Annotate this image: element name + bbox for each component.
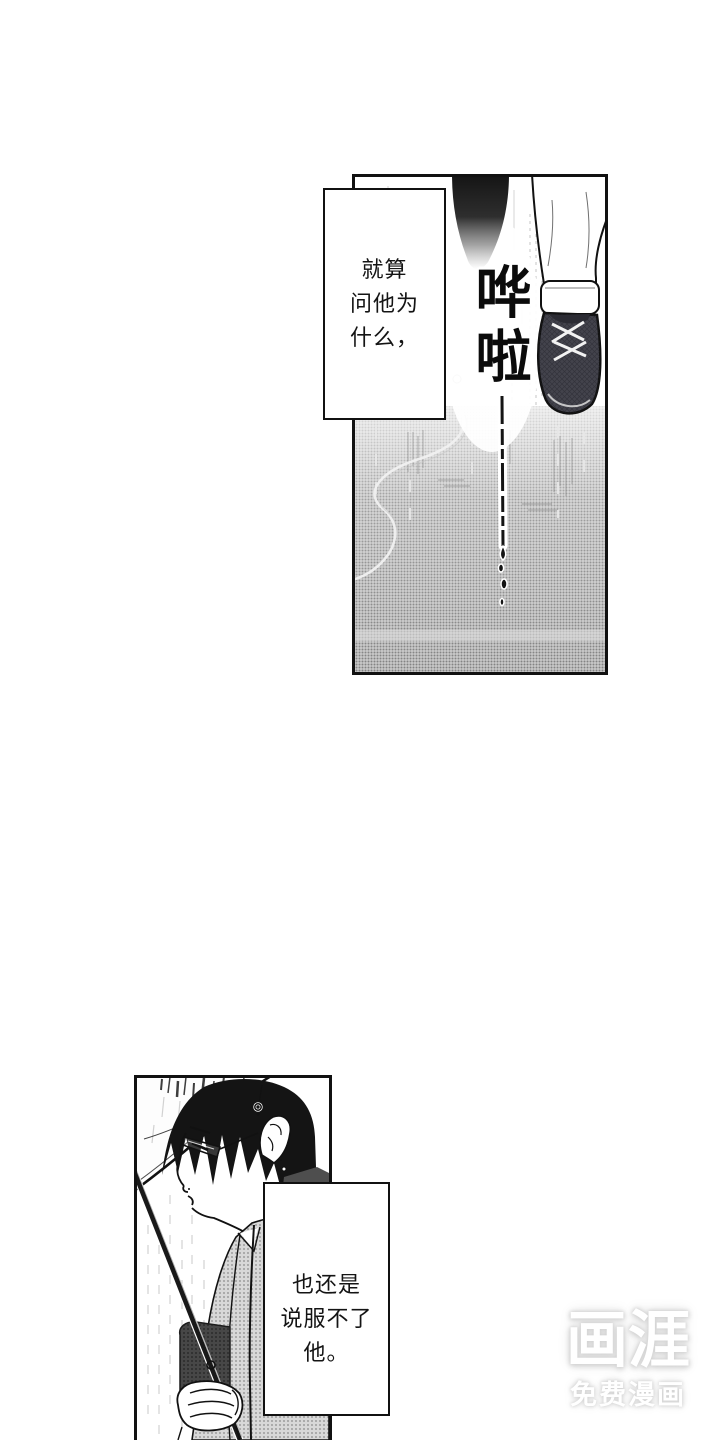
narration-line: 什么，	[350, 321, 419, 355]
sfx-text: 哗啦	[459, 263, 540, 391]
nostril	[188, 1188, 190, 1190]
narration-line: 也还是	[292, 1268, 361, 1302]
narration-line: 他。	[303, 1336, 349, 1370]
sneaker-shoe	[538, 313, 600, 413]
ground-light-band	[355, 630, 605, 641]
narration-box-1: 就算 问他为 什么，	[323, 188, 446, 420]
watermark-logo: 画涯	[556, 1308, 700, 1374]
pant-leg	[532, 177, 605, 284]
narration-box-2: 也还是 说服不了 他。	[263, 1182, 390, 1416]
watermark: 画涯 免费漫画	[556, 1308, 700, 1410]
narration-line: 说服不了	[280, 1302, 372, 1336]
pant-cuff	[541, 281, 599, 314]
narration-line: 问他为	[350, 287, 419, 321]
narration-line: 就算	[361, 253, 407, 287]
comic-page: 哗啦 就算 问他为 什么，	[0, 0, 720, 1440]
watermark-tagline: 免费漫画	[556, 1380, 700, 1410]
